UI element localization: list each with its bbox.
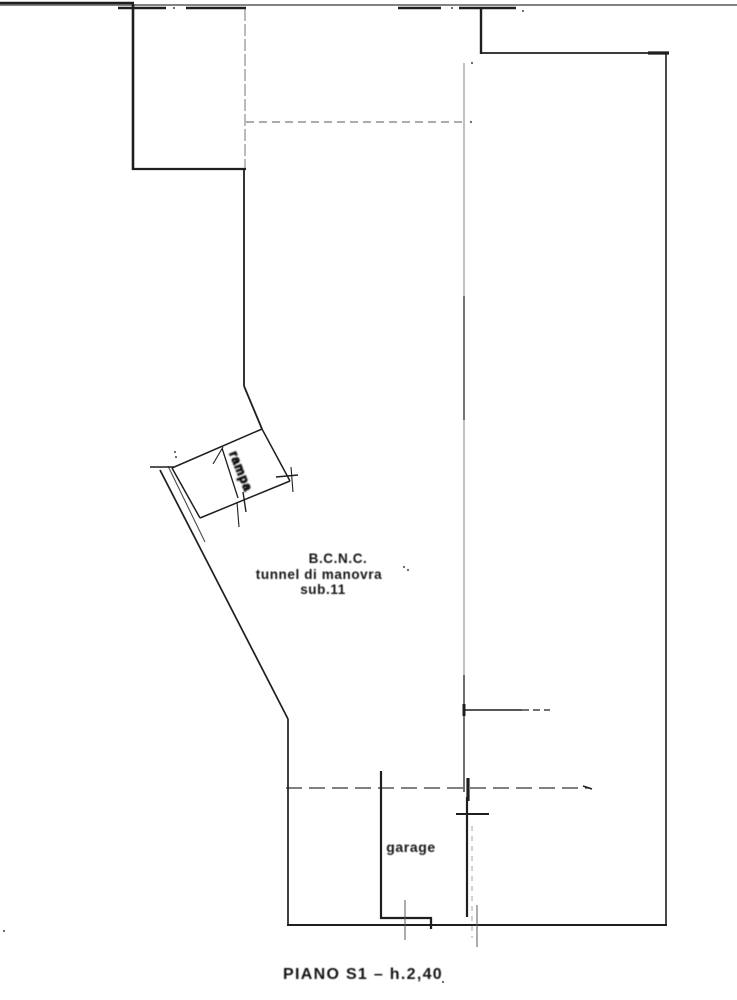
ink-speck [407, 569, 409, 571]
ramp-label: rampa [226, 449, 255, 494]
ink-speck [173, 7, 175, 9]
plan-sheet: rampa B.C.N.C. tunnel di manovra sub.11 … [0, 0, 737, 1000]
ramp-edge-top [172, 429, 262, 468]
ink-speck [3, 930, 5, 932]
floor-plan-svg: rampa [0, 0, 737, 1000]
ink-speck [470, 121, 472, 123]
unit-label-line-2: tunnel di manovra [256, 568, 382, 582]
ink-speck [471, 62, 473, 64]
wall-tick [291, 467, 293, 492]
ramp-edge-right [262, 429, 290, 481]
floor-caption: PIANO S1 – h.2,40 [283, 967, 443, 983]
ramp-mark [237, 502, 239, 527]
ink-speck [522, 10, 524, 12]
unit-label-line-3: sub.11 [300, 583, 346, 597]
ramp-edge-left [172, 468, 200, 518]
ink-speck [403, 566, 405, 568]
wall-tick [276, 475, 298, 477]
tunnel-wall-kink [244, 386, 262, 429]
garage-label: garage [386, 840, 436, 854]
ink-speck [451, 7, 453, 9]
ramp-mark [243, 492, 246, 512]
outer-wall-diagonal-inner [168, 466, 205, 542]
unit-label-line-1: B.C.N.C. [309, 552, 368, 566]
ink-speck [174, 451, 176, 453]
ink-speck [175, 456, 177, 458]
